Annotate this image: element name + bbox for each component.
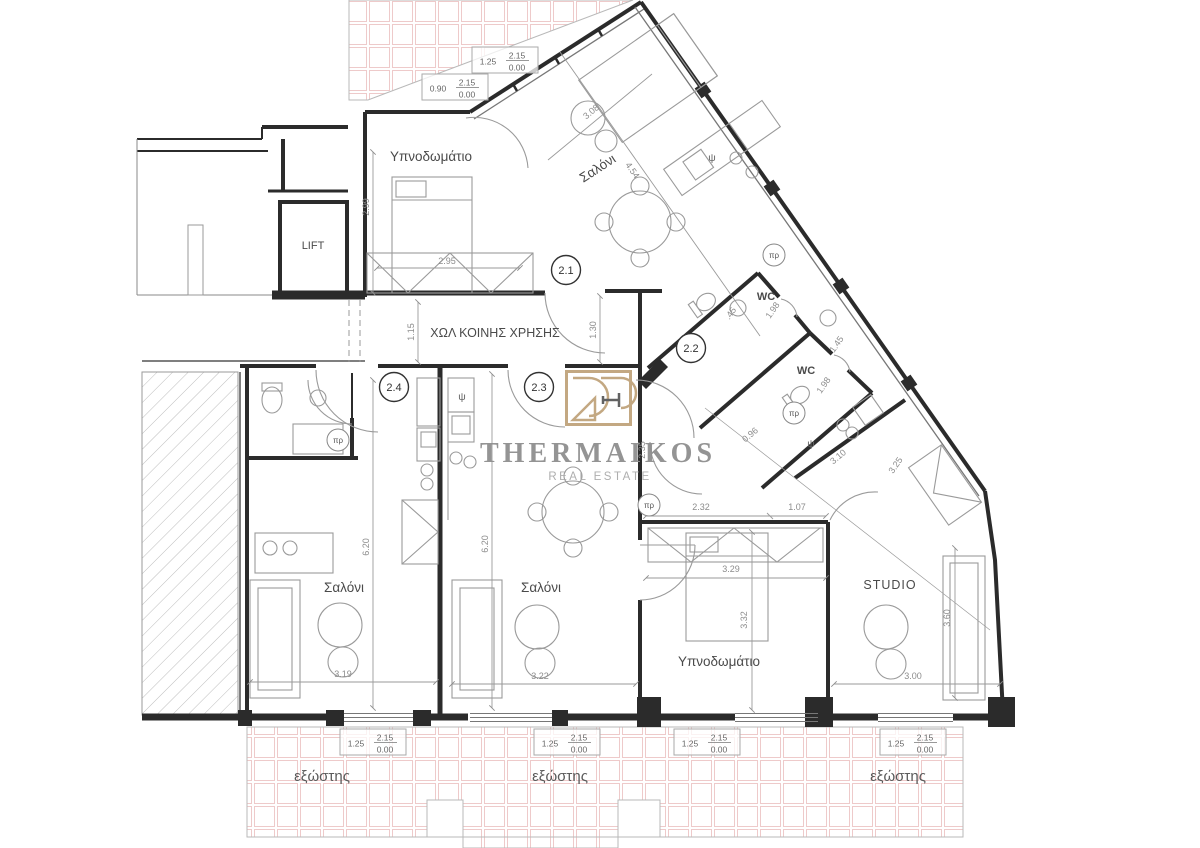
salon-left-label: Σαλόνι [324,580,364,595]
dim-130: 1.30 [588,321,598,339]
svg-text:2.15: 2.15 [711,733,728,743]
dim-box-bottom-3: 1.25 2.15 0.00 [674,729,740,755]
svg-text:0.90: 0.90 [430,84,447,94]
dim-198a: 1.98 [763,300,781,320]
svg-text:πρ: πρ [769,251,780,260]
pr-circle-4: πρ [327,429,349,451]
adjacent-building [142,361,365,715]
dim-232: 2.32 [692,502,710,512]
dim-325: 3.25 [886,455,904,475]
logo-emblem [565,370,636,426]
balcony-left-label: εξώστης [294,768,350,785]
pr-circle-1: πρ [763,244,785,266]
svg-text:πρ: πρ [789,409,800,418]
wc2-label: WC [797,365,815,377]
dim-332: 3.32 [739,611,749,629]
dim-329: 3.29 [722,564,740,574]
unit-circle-2-3: 2.3 [525,373,554,402]
dim-box-bottom-2: 1.25 2.15 0.00 [534,729,600,755]
balcony-right-label: εξώστης [870,768,926,785]
dim-115: 1.15 [406,323,416,341]
unit-circle-2-4: 2.4 [380,373,409,402]
floor-plan-drawing: 2.99 2.95 3.08 4.54 1.15 1.30 .45 1.98 1… [0,0,1200,848]
psi-symbol-3: ψ [807,438,815,450]
dim-300: 3.00 [904,671,922,681]
svg-text:2.15: 2.15 [509,51,526,61]
dim-045: .45 [723,305,738,321]
bedroom-top-label: Υπνοδωμάτιο [390,149,472,164]
unit-circle-2-1: 2.1 [552,256,581,285]
bedroom-bottom-label: Υπνοδωμάτιο [678,654,760,669]
salon-mid-label: Σαλόνι [521,580,561,595]
dim-box-bottom-4: 1.25 2.15 0.00 [880,729,946,755]
walls [137,2,1015,727]
svg-text:πρ: πρ [644,501,655,510]
dimension-texts: 2.99 2.95 3.08 4.54 1.15 1.30 .45 1.98 1… [334,102,952,681]
lift-label: LIFT [302,240,325,252]
svg-text:1.25: 1.25 [682,739,699,749]
svg-text:2.4: 2.4 [386,382,401,394]
svg-text:2.15: 2.15 [459,78,476,88]
dim-096: 0.96 [740,425,760,444]
floor-plan-page: 2.99 2.95 3.08 4.54 1.15 1.30 .45 1.98 1… [0,0,1200,848]
svg-text:1.25: 1.25 [348,739,365,749]
dim-box-top-right: 1.25 2.15 0.00 [472,47,538,73]
svg-text:0.00: 0.00 [509,63,526,73]
dim-620b: 6.20 [480,535,490,553]
svg-text:0.00: 0.00 [917,745,934,755]
psi-symbol-1: ψ [708,152,716,164]
dim-107: 1.07 [788,502,806,512]
svg-text:0.00: 0.00 [571,745,588,755]
dim-295: 2.95 [438,256,456,266]
svg-text:0.00: 0.00 [711,745,728,755]
unit-circle-2-2: 2.2 [677,334,706,363]
balcony-mid-label: εξώστης [532,768,588,785]
dim-319: 3.19 [334,669,352,679]
dim-box-bottom-1: 1.25 2.15 0.00 [340,729,406,755]
dim-322: 3.22 [531,671,549,681]
svg-text:2.2: 2.2 [683,343,698,355]
logo-name: THERMAIKOS [480,438,716,469]
logo: THERMAIKOS REAL ESTATE [480,370,716,483]
svg-text:2.15: 2.15 [377,733,394,743]
dim-620a: 6.20 [361,538,371,556]
hall-label: ΧΩΛ ΚΟΙΝΗΣ ΧΡΗΣΗΣ [430,326,560,340]
svg-text:0.00: 0.00 [377,745,394,755]
studio-label: STUDIO [863,578,916,592]
dim-box-top-left: 0.90 2.15 0.00 [422,74,488,100]
svg-text:πρ: πρ [333,436,344,445]
svg-text:2.15: 2.15 [571,733,588,743]
svg-text:0.00: 0.00 [459,90,476,100]
dim-360: 3.60 [942,609,952,627]
salon-top-label: Σαλόνι [577,151,619,185]
wc1-label: WC [757,291,775,303]
psi-symbol-2: ψ [458,391,466,403]
dim-145: 1.45 [827,334,845,354]
dim-198b: 1.98 [814,375,832,395]
dim-299: 2.99 [361,198,371,216]
svg-text:1.25: 1.25 [542,739,559,749]
pr-circle-2: πρ [783,402,805,424]
svg-text:2.1: 2.1 [558,265,573,277]
svg-text:1.25: 1.25 [888,739,905,749]
logo-tagline: REAL ESTATE [548,471,651,483]
svg-text:2.15: 2.15 [917,733,934,743]
svg-text:1.25: 1.25 [480,57,497,67]
furniture [250,14,985,700]
pr-circle-3: πρ [638,494,660,516]
svg-text:2.3: 2.3 [531,382,546,394]
